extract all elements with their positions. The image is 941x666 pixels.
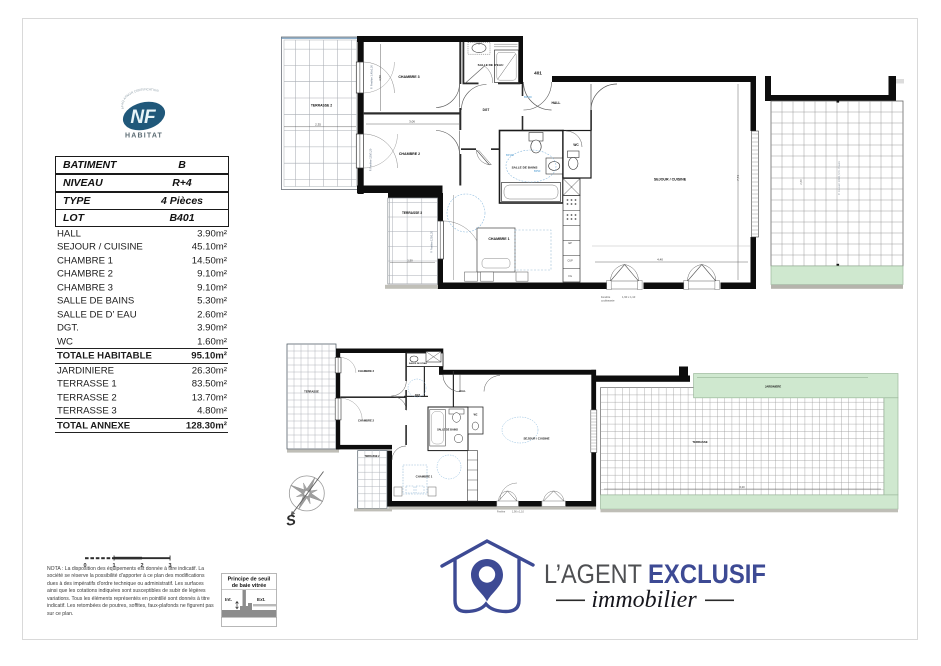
svg-text:2,88: 2,88: [799, 179, 803, 185]
svg-text:Ext.: Ext.: [257, 597, 265, 602]
svg-text:CHAMBRE 1: CHAMBRE 1: [488, 237, 509, 241]
svg-text:SEJOUR / CUISINE: SEJOUR / CUISINE: [523, 437, 549, 441]
svg-text:CUP: CUP: [568, 260, 574, 263]
svg-text:SEJOUR / CUISINE: SEJOUR / CUISINE: [654, 178, 687, 182]
svg-text:2,35: 2,35: [315, 122, 321, 126]
svg-text:NF: NF: [130, 107, 157, 128]
svg-text:immobilier: immobilier: [591, 587, 697, 613]
svg-text:L’AGENT: L’AGENT: [544, 559, 642, 589]
svg-text:coulissante: coulissante: [601, 299, 615, 303]
svg-text:Fenêtre: Fenêtre: [497, 511, 506, 514]
svg-text:SALLE DE BAINS: SALLE DE BAINS: [437, 429, 458, 432]
svg-text:SALLE DE D'EAU: SALLE DE D'EAU: [409, 362, 428, 365]
svg-text:1,90 x 1,10: 1,90 x 1,10: [512, 511, 524, 514]
svg-text:CHAMBRE 2: CHAMBRE 2: [399, 152, 420, 156]
svg-text:BP100: BP100: [524, 95, 532, 99]
svg-text:P. Couvert 133/2,72 h. Poutr: P. Couvert 133/2,72 h. Poutre: [837, 160, 841, 195]
svg-text:P. Fenêtre 1,40x1,20: P. Fenêtre 1,40x1,20: [370, 64, 374, 88]
svg-text:SALLE DE BAINS: SALLE DE BAINS: [512, 166, 538, 170]
svg-text:P. Fenêtre 120/1,20: P. Fenêtre 120/1,20: [431, 231, 434, 253]
svg-text:Fenêtre: Fenêtre: [601, 295, 611, 299]
svg-text:CHAMBRE 3: CHAMBRE 3: [358, 369, 374, 373]
svg-text:Principe de seuil: Principe de seuil: [228, 577, 271, 583]
svg-text:CHAMBRE 2: CHAMBRE 2: [358, 419, 374, 423]
svg-text:401: 401: [534, 71, 542, 76]
svg-text:TERRASSE: TERRASSE: [304, 389, 319, 393]
svg-text:EP: EP: [569, 242, 573, 245]
svg-text:TERRASSE 2: TERRASSE 2: [311, 104, 332, 108]
svg-text:HALL: HALL: [551, 101, 560, 105]
svg-text:BP90: BP90: [534, 169, 541, 173]
svg-text:TERRASSE: TERRASSE: [692, 440, 707, 444]
svg-text:de baie vitrée: de baie vitrée: [232, 583, 266, 589]
svg-text:HALL: HALL: [459, 390, 466, 393]
svg-text:BP100: BP100: [506, 153, 514, 157]
svg-text:1,90 x 1,10: 1,90 x 1,10: [622, 295, 636, 299]
svg-text:DGT: DGT: [483, 108, 490, 112]
svg-text:FG: FG: [569, 275, 573, 278]
svg-text:TERRASSE 2: TERRASSE 2: [364, 455, 380, 458]
svg-text:CHAMBRE 1: CHAMBRE 1: [416, 475, 433, 479]
svg-text:P. Fenêtre 120/1,20: P. Fenêtre 120/1,20: [369, 148, 373, 171]
svg-text:1,50: 1,50: [407, 258, 413, 262]
svg-text:JARDINIERE: JARDINIERE: [765, 385, 781, 389]
svg-text:3,06: 3,06: [409, 120, 415, 124]
svg-text:HABITAT: HABITAT: [125, 133, 163, 140]
svg-text:SALLE DE D'EAU: SALLE DE D'EAU: [478, 63, 504, 67]
svg-text:WC: WC: [474, 415, 478, 417]
svg-text:Int.: Int.: [225, 597, 232, 602]
svg-text:DGT: DGT: [415, 394, 421, 397]
svg-text:4,40: 4,40: [657, 258, 663, 262]
svg-text:6,20: 6,20: [739, 485, 745, 489]
svg-text:WC: WC: [573, 143, 579, 147]
svg-text:EXCLUSIF: EXCLUSIF: [648, 559, 766, 589]
svg-text:TERRASSE 3: TERRASSE 3: [402, 211, 422, 215]
svg-text:7,74: 7,74: [736, 175, 740, 181]
svg-text:S: S: [285, 512, 297, 529]
svg-text:CHAMBRE 3: CHAMBRE 3: [398, 75, 419, 79]
svg-text:3,50: 3,50: [378, 75, 382, 81]
